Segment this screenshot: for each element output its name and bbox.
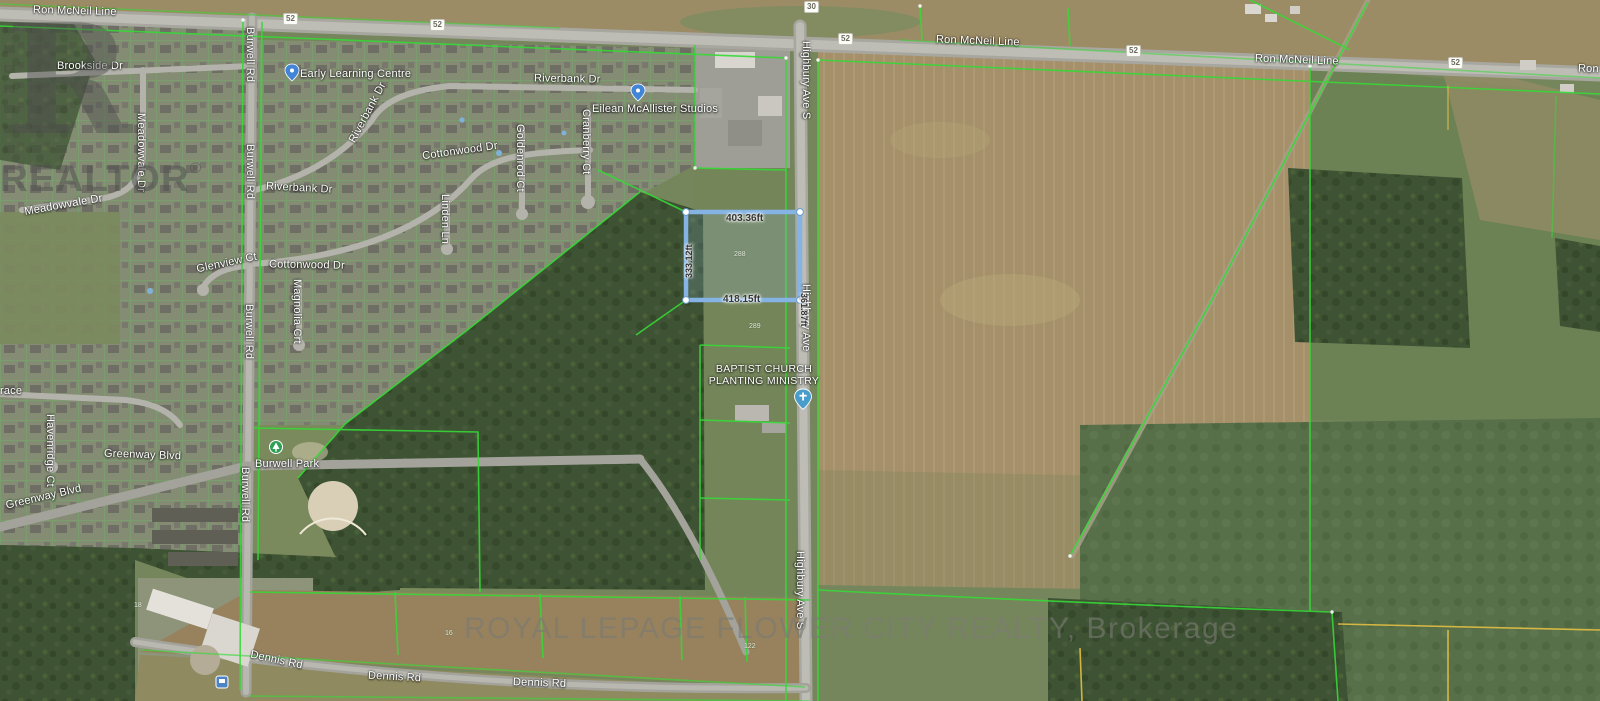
parcel-measurement-top: 403.36ft (726, 213, 763, 224)
listing-map-image: Ron McNeil Line Ron McNeil Line Ron McNe… (0, 0, 1600, 701)
church-label-line1: BAPTIST CHURCH (698, 364, 830, 376)
lot-number: 18 (134, 602, 142, 609)
route-shield: 52 (1126, 45, 1141, 57)
route-shield: 52 (838, 33, 853, 45)
poi-label-baptist-church: BAPTIST CHURCH PLANTING MINISTRY (698, 364, 830, 387)
route-shield: 52 (430, 19, 445, 31)
parcel-measurement-right: 361.87ft (799, 293, 809, 327)
realtor-watermark: REALTOR® (0, 158, 202, 200)
satellite-map[interactable] (0, 0, 1600, 701)
realtor-watermark-text: REALTOR (0, 158, 190, 199)
lot-number: 16 (445, 630, 453, 637)
church-label-line2: PLANTING MINISTRY (698, 376, 830, 388)
brokerage-watermark: ROYAL LEPAGE FLOWER CITY REALTY, Brokera… (464, 612, 1238, 646)
lot-number: 289 (749, 323, 761, 330)
realtor-logo-r: R (6, 0, 132, 160)
route-shield: 52 (283, 13, 298, 25)
park-pin-icon (270, 441, 283, 454)
parcel-measurement-left: 333.12ft (684, 244, 694, 278)
route-shield: 30 (804, 1, 819, 13)
transit-icon (216, 676, 228, 688)
lot-number: 288 (734, 251, 746, 258)
registered-mark-icon: ® (190, 160, 203, 177)
route-shield: 52 (1448, 57, 1463, 69)
parcel-measurement-bottom: 418.15ft (723, 294, 760, 305)
